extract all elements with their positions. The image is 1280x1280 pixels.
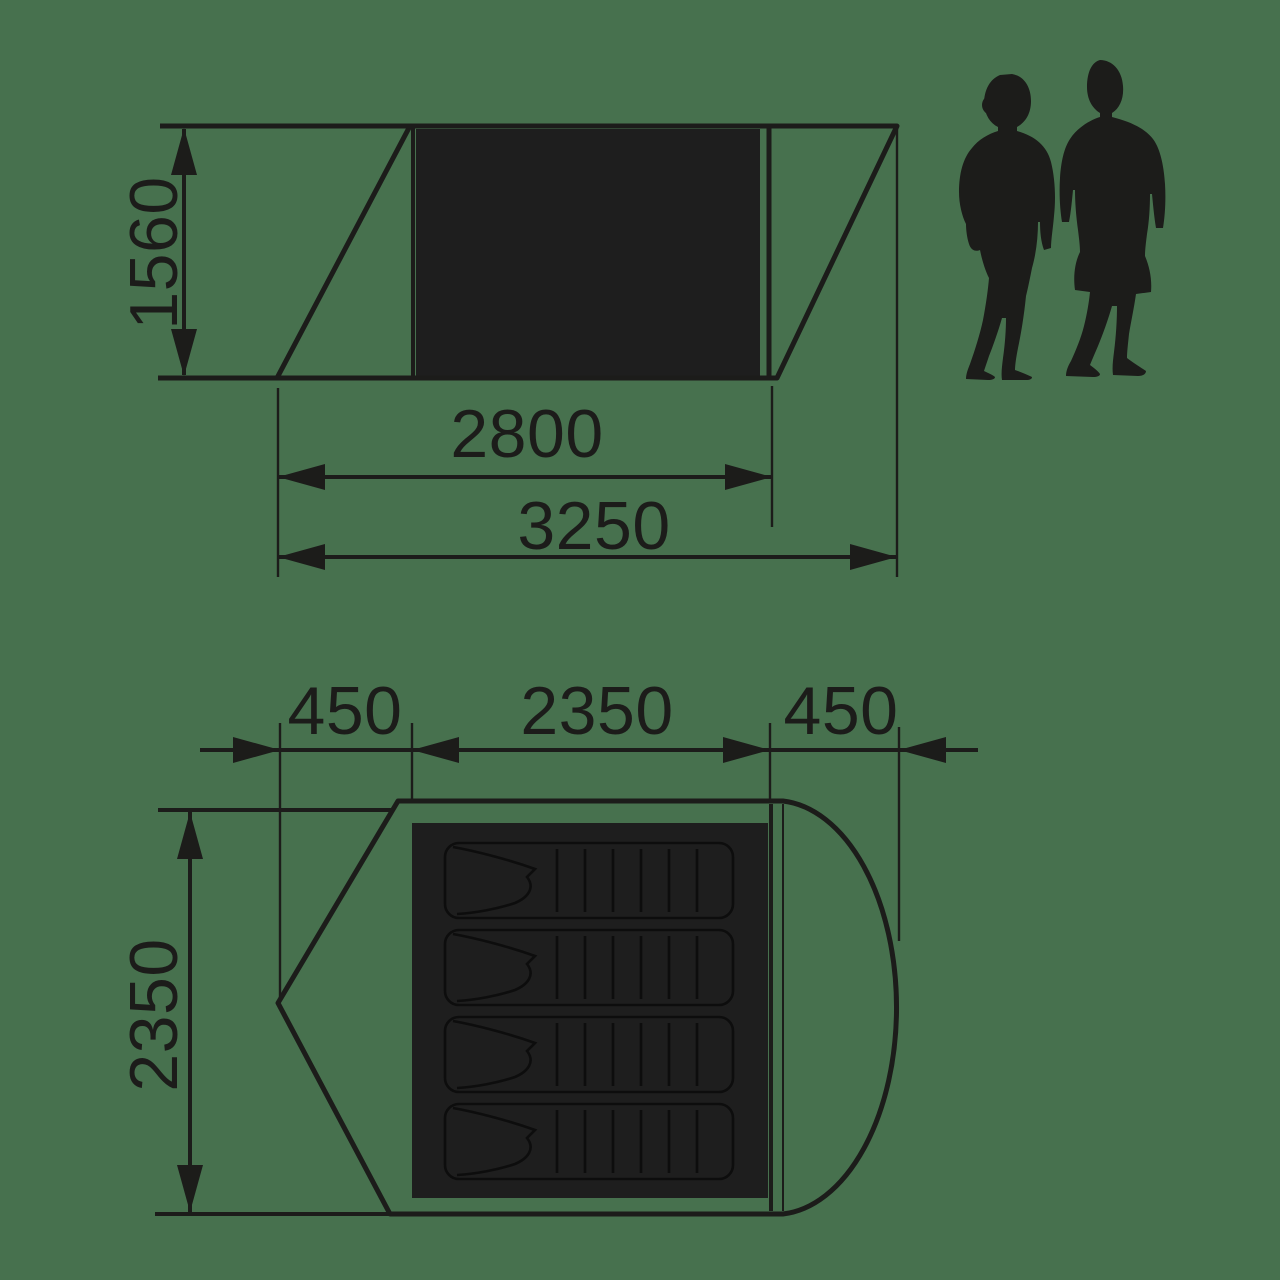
arrow-left-icon	[278, 544, 325, 570]
side-view-rear-slope	[277, 126, 410, 378]
dimension-side-height: 1560	[116, 128, 197, 376]
man-silhouette-icon	[1060, 60, 1166, 377]
arrow-down-icon	[177, 1165, 203, 1212]
arrow-right-icon	[723, 737, 770, 763]
arrow-right-icon	[850, 544, 897, 570]
top-view-floor-panel	[412, 823, 768, 1198]
arrow-down-icon	[171, 329, 197, 376]
top-inner-width-label: 2350	[520, 673, 673, 749]
arrow-left-icon	[278, 464, 325, 490]
side-height-label: 1560	[116, 176, 192, 329]
top-view	[278, 801, 897, 1214]
scale-figures	[959, 60, 1165, 380]
side-view	[158, 126, 897, 378]
arrow-right-icon	[725, 464, 772, 490]
side-view-door-panel	[416, 129, 760, 376]
side-view-front-slope	[777, 126, 897, 378]
top-depth-label: 2350	[116, 938, 192, 1091]
top-left-porch-label: 450	[288, 673, 403, 749]
arrow-up-icon	[177, 812, 203, 859]
woman-silhouette-icon	[959, 74, 1055, 380]
top-right-porch-label: 450	[784, 673, 899, 749]
arrow-right-icon	[233, 737, 280, 763]
tent-dimensions-diagram: 1560 2800 3250	[0, 0, 1280, 1280]
side-total-length-label: 3250	[517, 488, 670, 564]
arrow-left-icon	[412, 737, 459, 763]
side-inner-length-label: 2800	[450, 396, 603, 472]
arrow-up-icon	[171, 128, 197, 175]
arrow-left-icon	[899, 737, 946, 763]
